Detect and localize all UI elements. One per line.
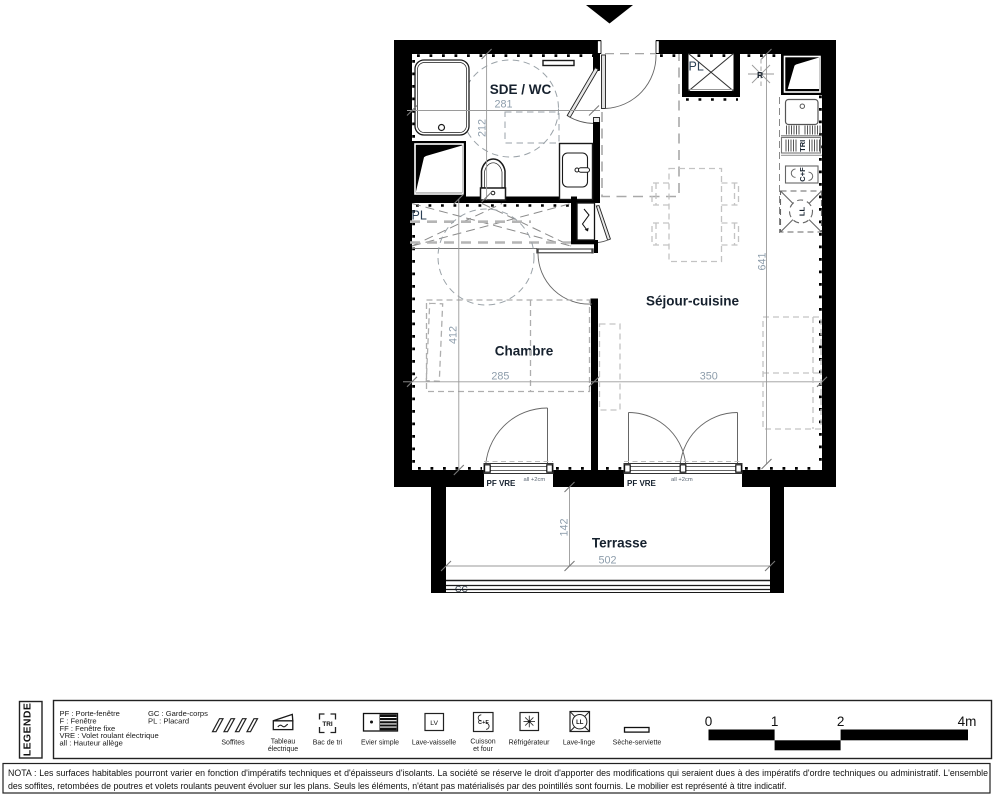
- svg-text:GC: GC: [455, 584, 468, 594]
- svg-text:Chambre: Chambre: [495, 344, 554, 359]
- svg-text:Terrasse: Terrasse: [592, 536, 648, 551]
- svg-text:TRI: TRI: [322, 721, 333, 728]
- svg-text:C+F: C+F: [798, 167, 807, 182]
- svg-text:412: 412: [448, 326, 460, 344]
- svg-text:Lave-vaisselle: Lave-vaisselle: [412, 740, 456, 747]
- svg-text:all +2cm: all +2cm: [671, 477, 693, 483]
- svg-text:et four: et four: [473, 746, 494, 753]
- svg-text:212: 212: [476, 119, 488, 137]
- svg-text:PF VRE: PF VRE: [487, 479, 517, 488]
- svg-text:Soffites: Soffites: [221, 740, 245, 747]
- svg-text:Sèche-serviette: Sèche-serviette: [613, 740, 662, 747]
- svg-text:Bac de tri: Bac de tri: [313, 740, 343, 747]
- svg-text:Lave-linge: Lave-linge: [563, 740, 595, 747]
- svg-text:502: 502: [598, 555, 616, 567]
- svg-text:350: 350: [700, 371, 718, 383]
- svg-text:PL : Placard: PL : Placard: [148, 716, 189, 725]
- svg-text:LL: LL: [576, 720, 584, 726]
- svg-text:Réfrigérateur: Réfrigérateur: [509, 740, 551, 747]
- svg-text:LV: LV: [430, 720, 438, 727]
- svg-text:PL: PL: [689, 60, 704, 74]
- svg-text:électrique: électrique: [268, 746, 298, 753]
- svg-text:1: 1: [771, 714, 779, 729]
- svg-text:all +2cm: all +2cm: [524, 477, 546, 483]
- svg-text:TRI: TRI: [798, 140, 807, 152]
- svg-text:LL: LL: [798, 207, 807, 217]
- svg-text:285: 285: [491, 371, 509, 383]
- svg-text:0: 0: [705, 714, 713, 729]
- svg-text:Tableau: Tableau: [271, 739, 296, 746]
- svg-text:Séjour-cuisine: Séjour-cuisine: [646, 294, 740, 309]
- svg-text:PF VRE: PF VRE: [627, 479, 657, 488]
- svg-text:2: 2: [837, 714, 845, 729]
- svg-text:4m: 4m: [958, 714, 977, 729]
- svg-text:281: 281: [494, 99, 512, 111]
- svg-text:641: 641: [756, 252, 768, 270]
- svg-text:142: 142: [558, 518, 570, 536]
- svg-text:Evier simple: Evier simple: [361, 740, 399, 747]
- svg-text:Cuisson: Cuisson: [470, 739, 495, 746]
- svg-text:all : Hauteur allège: all : Hauteur allège: [60, 739, 123, 748]
- svg-text:R: R: [757, 70, 763, 80]
- svg-text:LEGENDE: LEGENDE: [22, 703, 34, 757]
- svg-text:C+F: C+F: [478, 720, 489, 726]
- svg-text:SDE / WC: SDE / WC: [490, 82, 552, 97]
